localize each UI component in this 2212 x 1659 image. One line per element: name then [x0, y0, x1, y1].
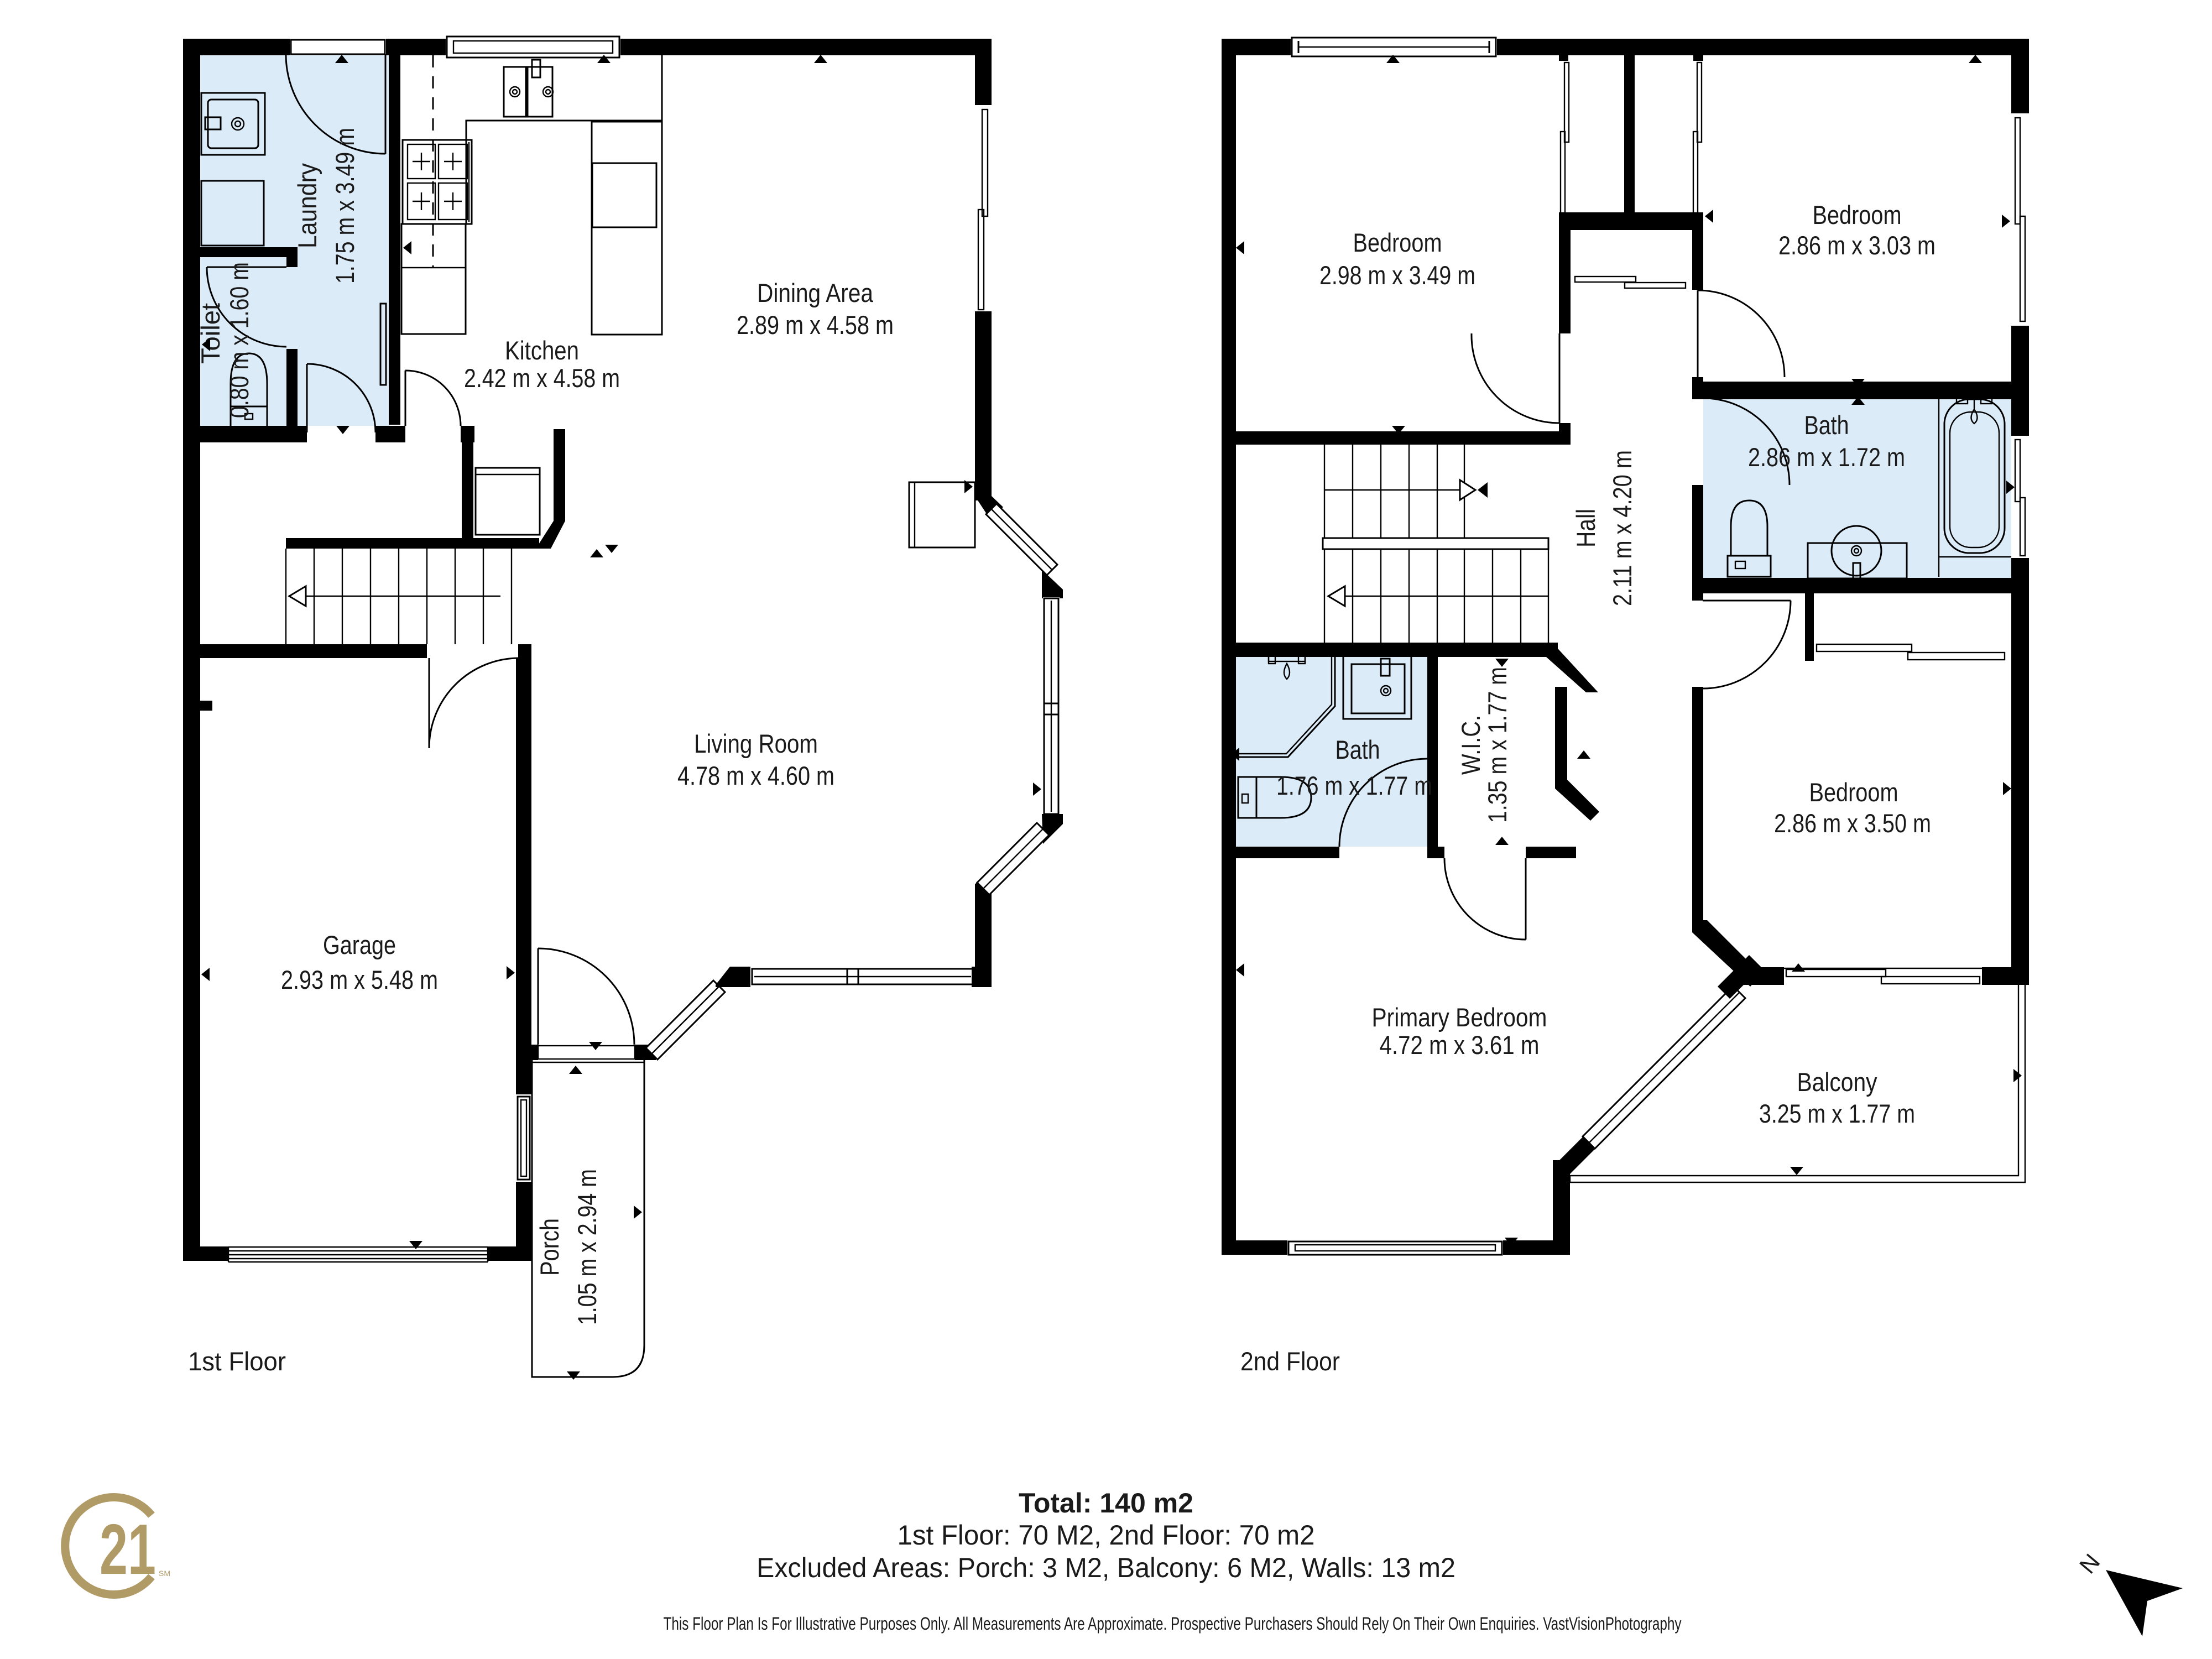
svg-text:Bath: Bath	[1335, 735, 1380, 764]
svg-text:Excluded Areas: Porch: 3 M2, B: Excluded Areas: Porch: 3 M2, Balcony: 6 …	[757, 1552, 1455, 1583]
svg-text:SM: SM	[159, 1569, 170, 1578]
svg-text:Toilet: Toilet	[196, 303, 225, 364]
svg-text:Living Room: Living Room	[694, 729, 818, 758]
svg-text:Bedroom: Bedroom	[1813, 200, 1902, 229]
svg-text:Bath: Bath	[1804, 410, 1849, 440]
svg-text:4.72 m x 3.61 m: 4.72 m x 3.61 m	[1380, 1030, 1540, 1060]
svg-text:2.42 m x 4.58 m: 2.42 m x 4.58 m	[464, 363, 620, 393]
svg-text:Bedroom: Bedroom	[1809, 778, 1898, 807]
svg-text:2.86 m x 1.72 m: 2.86 m x 1.72 m	[1748, 442, 1905, 472]
svg-text:3.25 m x 1.77 m: 3.25 m x 1.77 m	[1759, 1099, 1915, 1128]
svg-text:Garage: Garage	[323, 930, 396, 959]
svg-text:Total: 140 m2: Total: 140 m2	[1019, 1488, 1193, 1519]
svg-text:2.93 m x 5.48 m: 2.93 m x 5.48 m	[281, 965, 438, 994]
svg-text:1.05 m x 2.94 m: 1.05 m x 2.94 m	[572, 1169, 602, 1325]
svg-text:Balcony: Balcony	[1797, 1067, 1877, 1097]
svg-text:2.98 m x 3.49 m: 2.98 m x 3.49 m	[1319, 260, 1475, 290]
svg-text:21: 21	[100, 1510, 156, 1589]
svg-text:1.75 m x 3.49 m: 1.75 m x 3.49 m	[330, 128, 359, 284]
svg-text:1st Floor: 1st Floor	[188, 1347, 286, 1376]
svg-text:Dining Area: Dining Area	[757, 278, 874, 307]
svg-text:2.89 m x 4.58 m: 2.89 m x 4.58 m	[737, 310, 894, 340]
svg-text:1st Floor: 70 M2, 2nd Floor: 7: 1st Floor: 70 M2, 2nd Floor: 70 m2	[898, 1520, 1315, 1551]
svg-text:This Floor Plan Is For Illustr: This Floor Plan Is For Illustrative Purp…	[664, 1614, 1682, 1634]
svg-text:1.76 m x 1.77 m: 1.76 m x 1.77 m	[1276, 771, 1432, 800]
svg-text:Bedroom: Bedroom	[1353, 228, 1442, 257]
svg-text:Kitchen: Kitchen	[505, 336, 579, 365]
svg-text:1.35 m x 1.77 m: 1.35 m x 1.77 m	[1483, 667, 1512, 823]
svg-text:2.86 m x 3.03 m: 2.86 m x 3.03 m	[1778, 231, 1936, 260]
svg-text:Primary Bedroom: Primary Bedroom	[1372, 1003, 1547, 1032]
svg-text:Laundry: Laundry	[293, 163, 322, 248]
svg-text:2.86 m x 3.50 m: 2.86 m x 3.50 m	[1774, 808, 1931, 838]
svg-text:Hall: Hall	[1571, 509, 1600, 547]
svg-text:4.78 m x 4.60 m: 4.78 m x 4.60 m	[677, 761, 834, 790]
svg-text:0.80 m x 1.60 m: 0.80 m x 1.60 m	[225, 262, 254, 418]
svg-text:W.I.C.: W.I.C.	[1456, 715, 1485, 775]
svg-text:2.11 m x 4.20 m: 2.11 m x 4.20 m	[1608, 450, 1637, 606]
svg-text:Porch: Porch	[535, 1218, 564, 1276]
svg-text:2nd Floor: 2nd Floor	[1240, 1347, 1340, 1376]
